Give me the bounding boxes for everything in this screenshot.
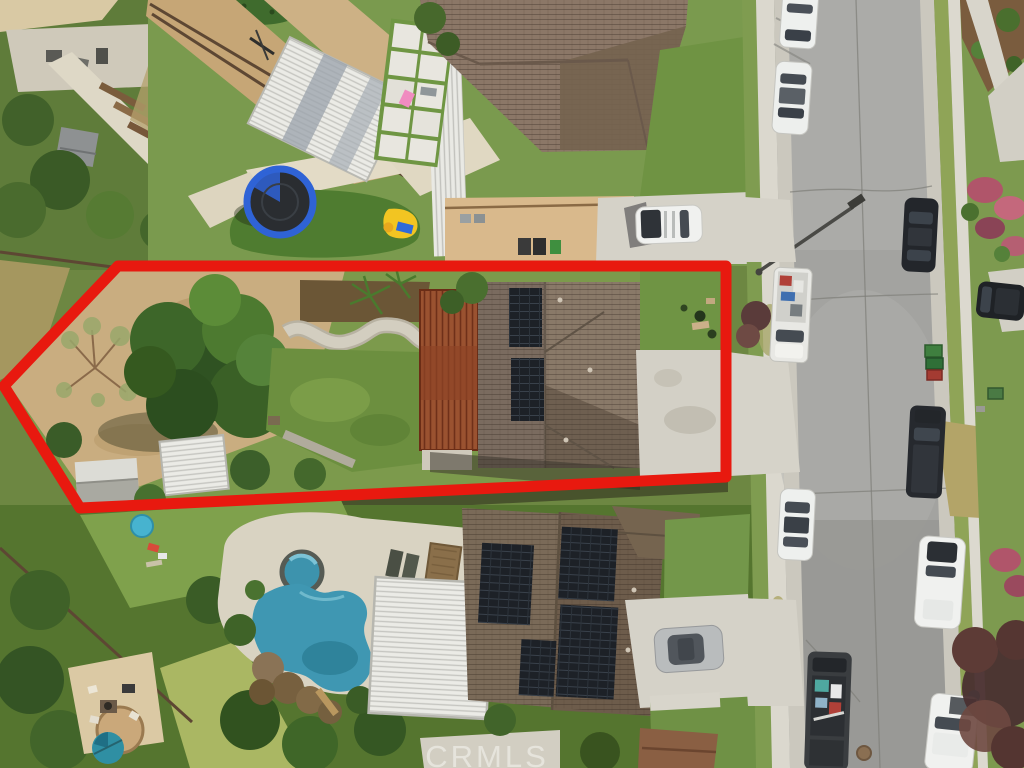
- solar-array: [509, 288, 542, 347]
- solar-array: [511, 358, 544, 421]
- rear-window: [909, 211, 934, 224]
- windshield: [776, 329, 805, 342]
- bush: [230, 450, 270, 490]
- tree-over-roof: [414, 2, 446, 34]
- silver-car: [654, 625, 725, 674]
- solar-array: [558, 527, 618, 602]
- lawn-patch: [350, 414, 410, 446]
- white-car-top: [779, 0, 819, 49]
- green-trash-bin: [925, 345, 942, 357]
- windshield: [914, 427, 941, 441]
- tree-canopy: [2, 94, 54, 146]
- roof-rail: [664, 211, 667, 238]
- south-front-lawn: [664, 514, 750, 600]
- cargo-item: [779, 275, 792, 286]
- south-neighbor-property: [0, 498, 760, 768]
- windshield: [907, 249, 932, 261]
- lawn-patch: [290, 378, 370, 422]
- solar-array: [478, 543, 534, 626]
- white-pickup-cargo: [770, 267, 813, 363]
- pool-plant: [224, 614, 256, 646]
- green-trash-bin: [926, 358, 943, 369]
- windshield: [785, 29, 812, 42]
- roof-vent: [632, 588, 637, 593]
- putting-hole: [270, 10, 275, 15]
- play-item: [158, 553, 167, 559]
- mulch-bed: [300, 280, 430, 322]
- watermark: CRMLS: [425, 739, 549, 768]
- suv-roof-dark: [926, 541, 957, 563]
- aerial-photo: CRMLS: [0, 0, 1024, 768]
- deck-mat: [426, 543, 462, 584]
- canopy-slats: [159, 435, 228, 495]
- manhole-cover: [857, 746, 871, 760]
- black-sedan: [901, 197, 939, 273]
- front-planter: [706, 298, 715, 304]
- roof-vent: [564, 438, 569, 443]
- truck-tail: [809, 739, 844, 766]
- truck-bed: [911, 444, 939, 493]
- purple-shrub: [736, 324, 760, 348]
- truck-hood: [914, 409, 941, 423]
- ac-unit: [460, 214, 471, 223]
- cargo-item: [790, 304, 803, 317]
- car-roof: [784, 516, 810, 533]
- roof-vent: [558, 298, 563, 303]
- ac-unit: [474, 214, 485, 223]
- kiddie-pool: [131, 515, 153, 537]
- bush: [86, 191, 134, 239]
- white-shed: [75, 458, 140, 504]
- patio-grill: [122, 684, 135, 693]
- firepit-bench: [268, 416, 280, 425]
- white-sedan: [772, 61, 813, 135]
- white-canopy: [159, 435, 228, 495]
- pool-deep-end: [302, 641, 358, 675]
- truck-hood: [775, 343, 804, 358]
- fire-bowl: [104, 702, 112, 710]
- cargo-item: [830, 684, 841, 698]
- roof-vent: [626, 648, 631, 653]
- driveway-apron: [740, 598, 804, 706]
- utility-box-small: [976, 406, 985, 412]
- cargo-item: [815, 698, 827, 708]
- solar-array: [556, 605, 619, 700]
- rear-window: [780, 73, 807, 85]
- car-roof: [779, 87, 806, 105]
- trash-bin: [533, 238, 546, 255]
- pole-base: [756, 269, 763, 276]
- car-roof: [677, 638, 694, 661]
- cargo-item: [793, 280, 804, 293]
- front-shrub: [708, 330, 717, 339]
- bush: [294, 458, 326, 490]
- suv-windshield: [680, 210, 690, 238]
- windshield: [925, 565, 956, 578]
- suv-roof: [994, 288, 1021, 316]
- rear-window: [785, 501, 811, 513]
- cargo-item: [781, 292, 795, 302]
- cargo-item: [815, 680, 829, 692]
- patio-grill: [96, 48, 108, 64]
- black-suv: [975, 281, 1024, 322]
- utility-box: [988, 388, 1003, 399]
- red-trash-bin: [927, 370, 942, 380]
- tree-over-roof: [440, 290, 464, 314]
- suv-rear-glass: [641, 210, 662, 239]
- windshield: [812, 657, 846, 672]
- driveway-stain: [664, 406, 716, 434]
- trash-bin: [518, 238, 531, 255]
- terracotta-pergola: [420, 290, 478, 470]
- black-pickup: [906, 405, 947, 499]
- suv-hood: [922, 599, 953, 621]
- green-bin: [550, 240, 561, 254]
- tree-over-roof: [436, 32, 460, 56]
- tree-canopy: [10, 570, 70, 630]
- solar-array: [519, 639, 557, 697]
- dark-truck-cargo: [804, 651, 852, 768]
- rear-window: [787, 3, 814, 14]
- corner-plant: [996, 8, 1020, 32]
- front-shrub: [681, 305, 688, 312]
- white-suv-driveway: [624, 202, 703, 248]
- lattice-solid-band: [420, 346, 478, 400]
- bush: [484, 704, 516, 736]
- windshield: [778, 107, 805, 119]
- driveway-apron: [730, 196, 796, 262]
- roof-rail: [672, 211, 675, 238]
- car-roof: [907, 227, 932, 246]
- driveway-stain: [654, 369, 682, 387]
- white-car-mid: [777, 488, 816, 561]
- windshield: [783, 536, 808, 547]
- white-suv-east: [914, 536, 966, 630]
- roof-vent: [588, 368, 593, 373]
- pool-plant: [245, 580, 265, 600]
- front-shrub: [695, 311, 706, 322]
